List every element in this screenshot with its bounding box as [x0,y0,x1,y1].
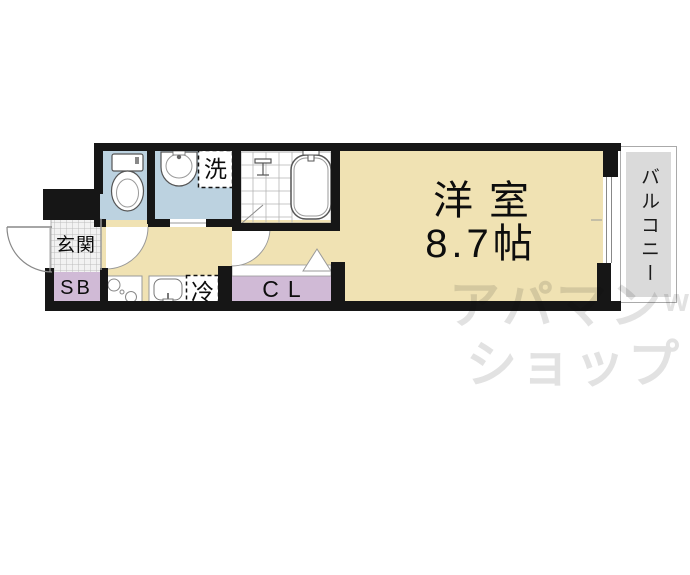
closet-label: CL [232,278,331,301]
wall-segment [218,266,232,311]
stove-icon [106,276,142,304]
wall-segment [148,219,170,227]
main-room-size: 8.7帖 [356,224,606,264]
washbasin-icon [161,151,197,186]
wall-segment [147,146,155,224]
wall-segment [100,268,108,311]
washroom-door [170,219,206,227]
wall-segment [597,263,611,311]
wall-segment [94,143,621,151]
wall-segment [94,143,103,194]
wall-segment [43,189,100,220]
shoe-box-label: SB [53,278,100,298]
wall-segment [232,143,241,231]
wall-segment [232,223,340,231]
washing-machine-label: 洗 [198,158,233,181]
main-room-name: 洋室 [356,181,606,221]
entrance-label: 玄関 [51,236,101,255]
balcony-label: バルコニー [628,153,668,300]
wall-segment [331,262,345,311]
refrigerator-label: 冷 [186,281,219,304]
floorplan-drawing [0,0,690,575]
floorplan-canvas: 玄関 SB 洗 冷 CL 洋室 8.7帖 バルコニー アパマンw ショップ [0,0,690,575]
wall-segment [603,143,618,177]
bathtub-icon [291,150,331,219]
entrance-door-arc [7,227,52,272]
wall-segment [331,143,340,231]
wall-segment [94,219,106,227]
toilet-icon [112,154,144,211]
